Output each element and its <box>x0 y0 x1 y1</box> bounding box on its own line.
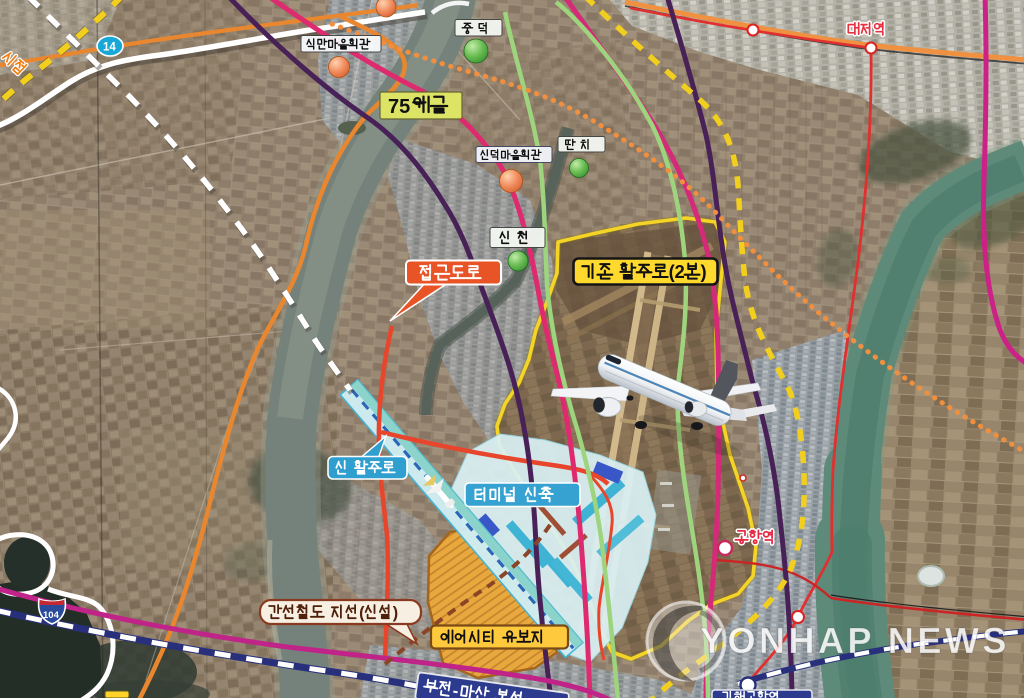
svg-text:): ) <box>393 604 398 622</box>
svg-text:2: 2 <box>675 261 685 282</box>
svg-text:(: ( <box>359 604 365 622</box>
svg-text:): ) <box>701 261 707 282</box>
svg-text:75: 75 <box>388 96 410 118</box>
svg-text:104: 104 <box>43 610 60 621</box>
svg-text:14: 14 <box>103 42 116 54</box>
svg-text:YONHAP NEWS: YONHAP NEWS <box>700 620 1010 661</box>
